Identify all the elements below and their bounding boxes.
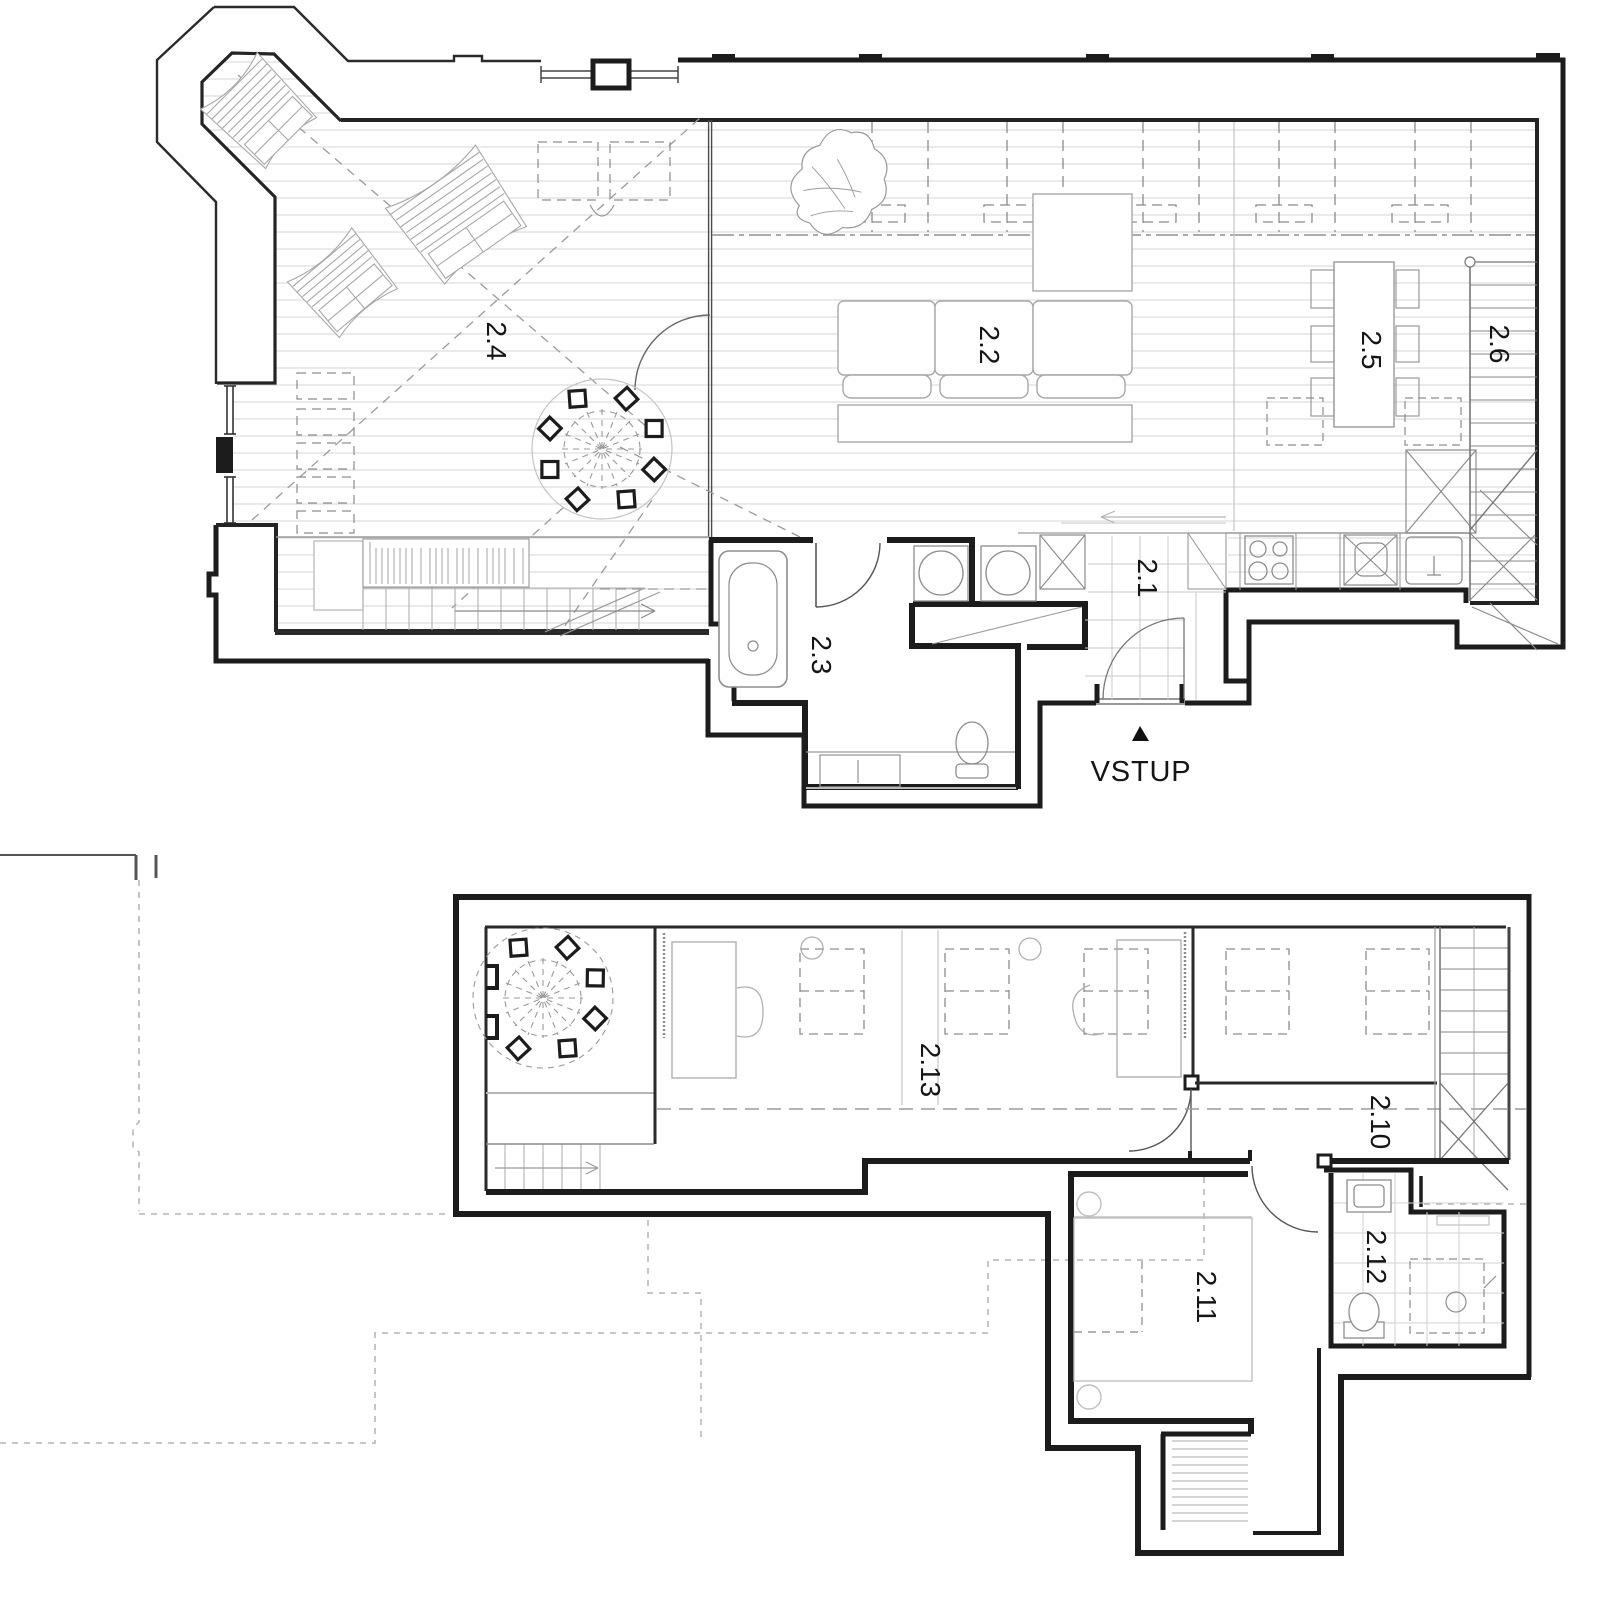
svg-text:2.1: 2.1 [1132, 559, 1163, 598]
svg-text:2.13: 2.13 [915, 1043, 946, 1098]
svg-text:2.6: 2.6 [1484, 325, 1515, 364]
svg-text:2.11: 2.11 [1191, 1271, 1222, 1323]
svg-text:2.2: 2.2 [974, 326, 1005, 365]
svg-text:2.10: 2.10 [1365, 1095, 1396, 1150]
svg-text:2.4: 2.4 [481, 322, 512, 361]
svg-text:2.5: 2.5 [1356, 331, 1387, 370]
svg-text:2.12: 2.12 [1361, 1230, 1392, 1285]
svg-text:2.3: 2.3 [806, 636, 837, 675]
svg-text:VSTUP: VSTUP [1091, 756, 1192, 788]
